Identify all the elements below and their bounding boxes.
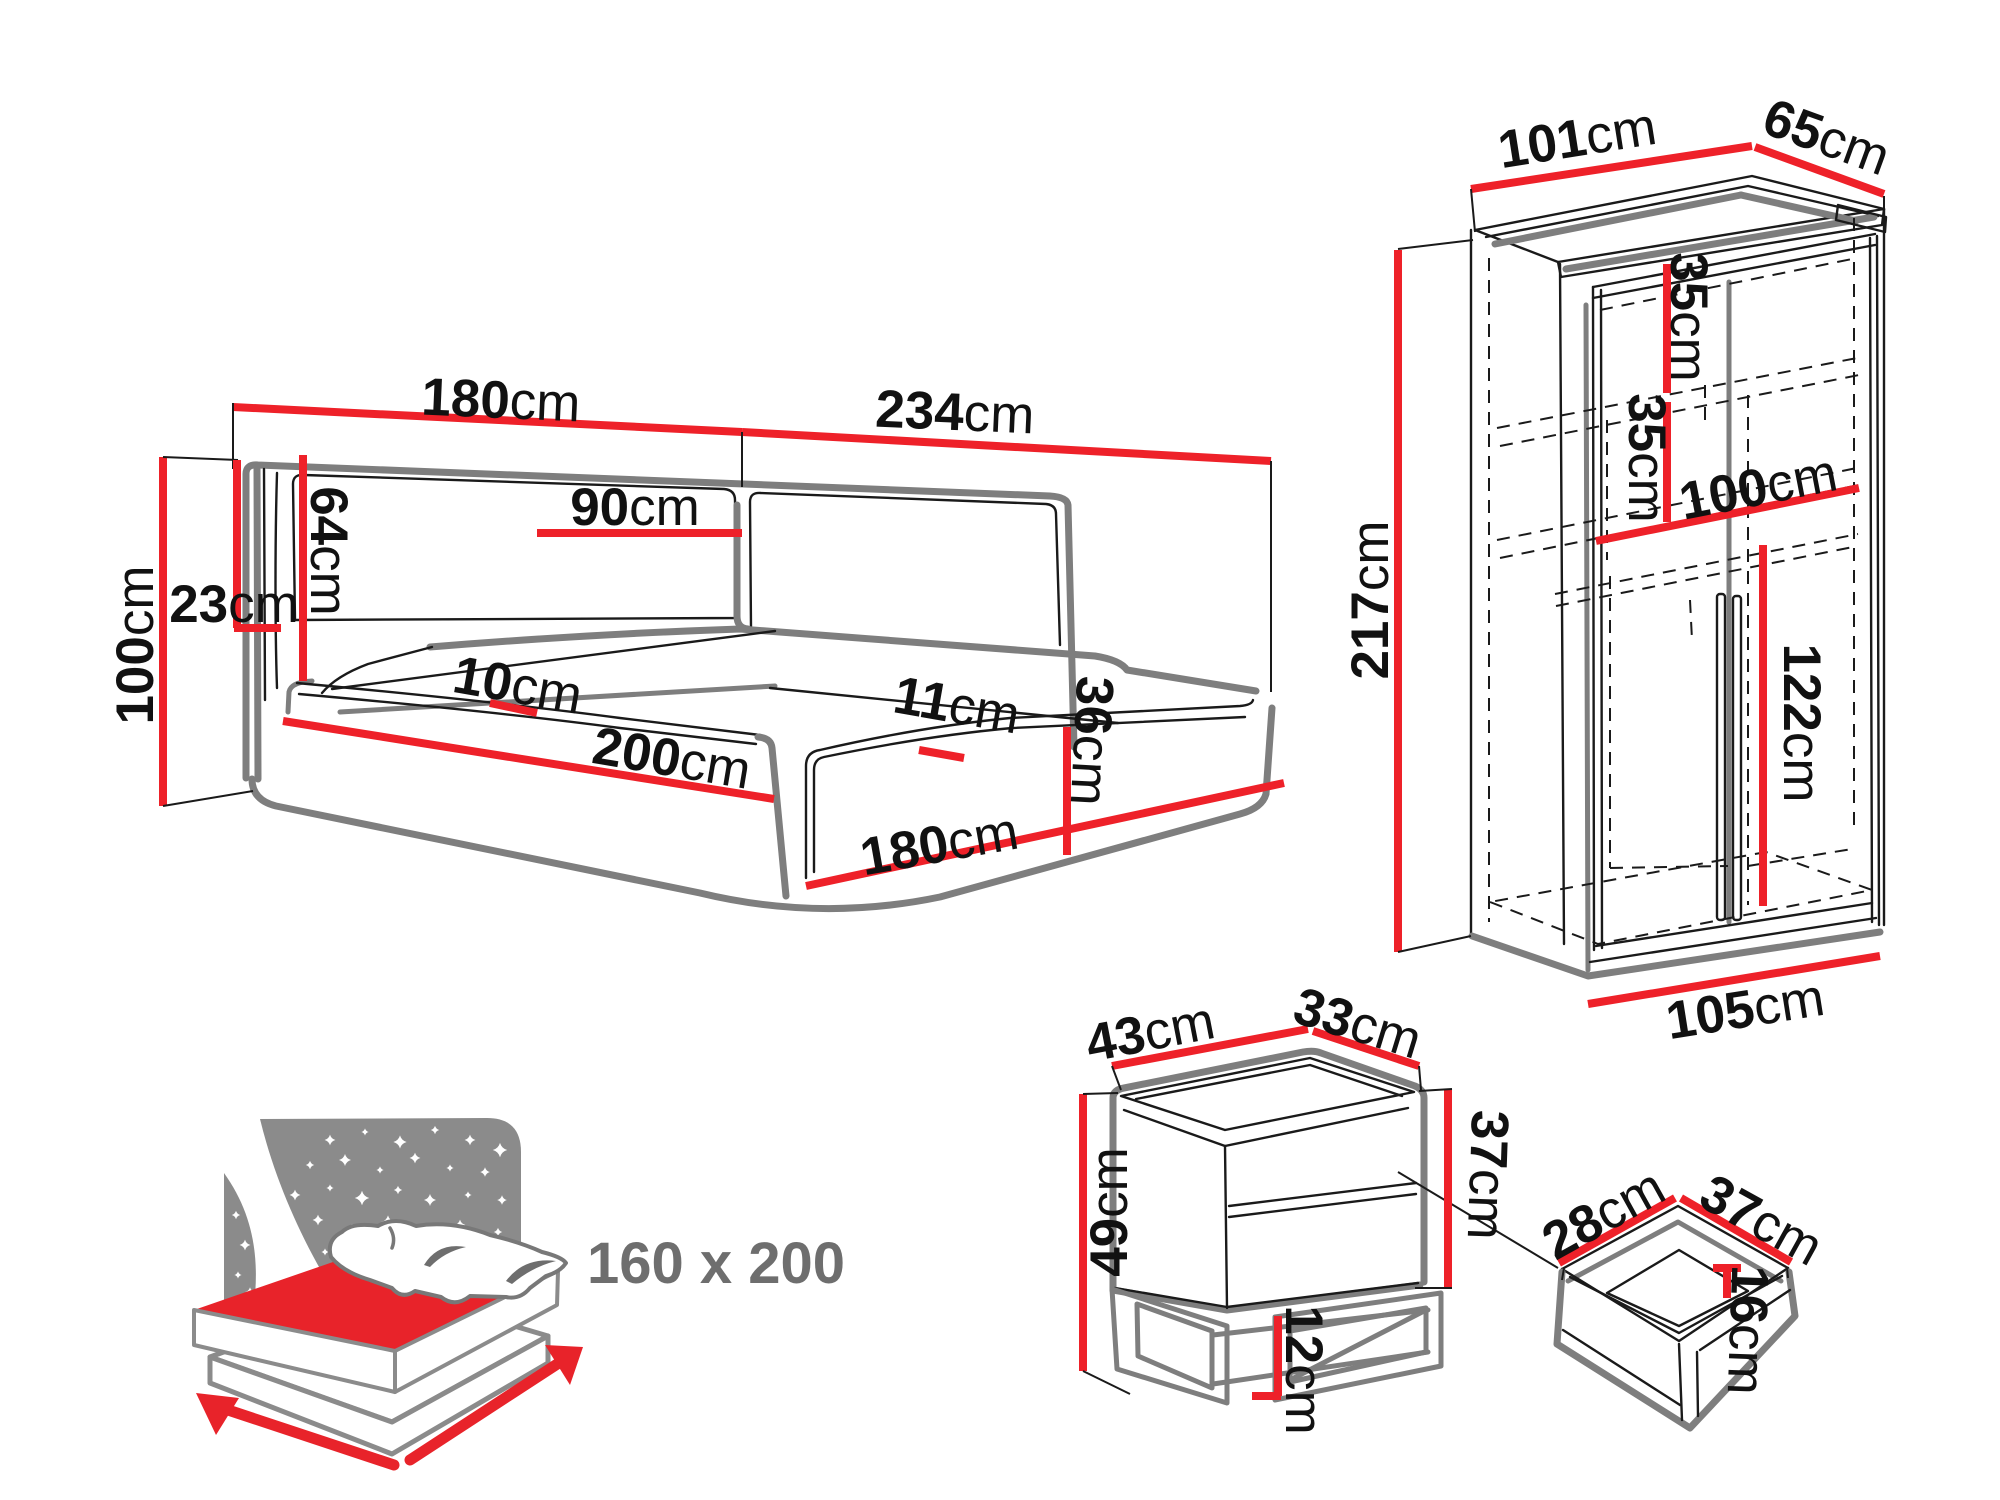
- svg-text:35cm: 35cm: [1659, 252, 1718, 382]
- svg-text:100cm: 100cm: [106, 565, 165, 724]
- svg-text:35cm: 35cm: [1617, 393, 1676, 523]
- svg-text:49cm: 49cm: [1080, 1147, 1139, 1277]
- svg-text:180cm: 180cm: [420, 368, 582, 434]
- svg-text:160 x 200: 160 x 200: [587, 1231, 845, 1296]
- svg-text:23cm: 23cm: [169, 575, 299, 634]
- svg-text:64cm: 64cm: [299, 486, 358, 616]
- svg-text:122cm: 122cm: [1772, 643, 1831, 802]
- svg-text:234cm: 234cm: [874, 380, 1036, 446]
- svg-text:90cm: 90cm: [570, 478, 700, 537]
- svg-text:37cm: 37cm: [1456, 1109, 1519, 1241]
- svg-text:36cm: 36cm: [1059, 675, 1125, 808]
- svg-text:16cm: 16cm: [1716, 1264, 1779, 1396]
- svg-text:217cm: 217cm: [1341, 520, 1400, 679]
- svg-text:12cm: 12cm: [1274, 1305, 1333, 1435]
